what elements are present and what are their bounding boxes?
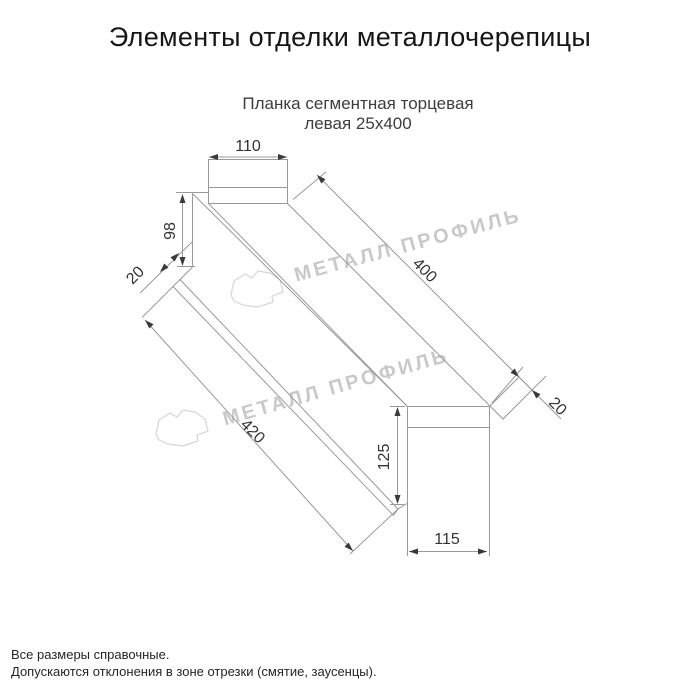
dimension-lines [140,157,561,554]
profile-outline [173,160,532,557]
footnote-line-2: Допускаются отклонения в зоне отрезки (с… [11,663,571,680]
dim-label-top-width: 110 [235,138,261,156]
metall-profil-logo-cloud-lower [156,410,208,446]
dim-label-end-height: 125 [376,444,394,471]
dim-label-left-height: 98 [162,222,180,240]
dim-label-end-width: 115 [434,531,460,549]
metall-profil-logo-cloud-upper [231,271,283,307]
footnote-line-1: Все размеры справочные. [11,646,571,663]
dimension-arrowheads [145,154,541,555]
page: { "header": { "title": "Элементы отделки… [0,0,700,700]
profile-technical-drawing [0,0,700,700]
footnotes: Все размеры справочные. Допускаются откл… [11,646,571,680]
